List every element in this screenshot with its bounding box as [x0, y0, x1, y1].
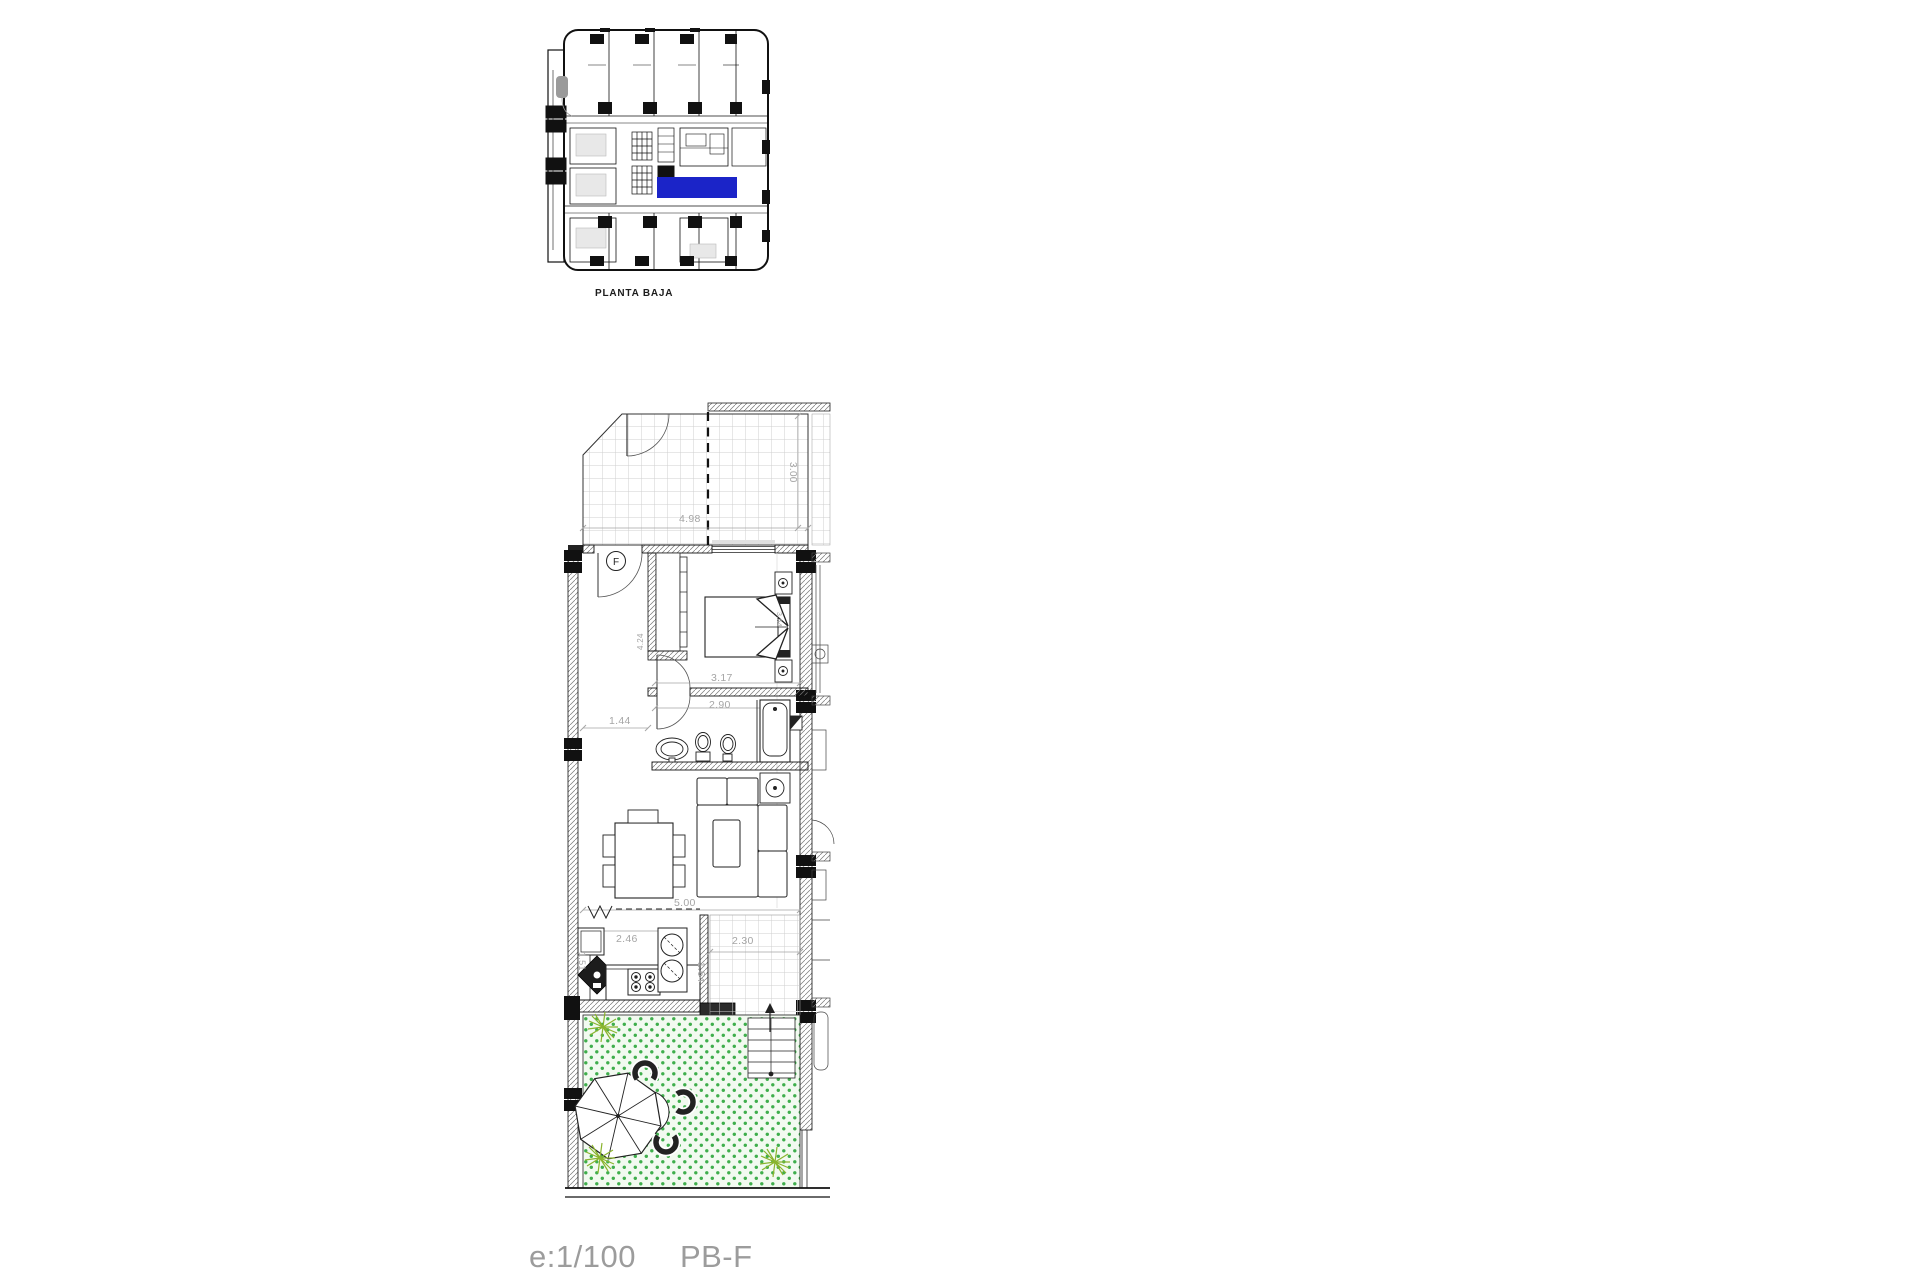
stair-core [658, 128, 674, 162]
stove [628, 969, 660, 995]
top-wall [568, 540, 808, 597]
overview-plan [540, 20, 772, 282]
elevator-core [632, 132, 652, 194]
dim-hall-width: 1.44 [609, 716, 631, 727]
plan-code-label: PB-F [680, 1239, 753, 1275]
patio [707, 915, 803, 1015]
scale-label: e:1/100 [529, 1239, 636, 1275]
bedroom-window [712, 547, 775, 553]
overview-caption: PLANTA BAJA [595, 288, 673, 299]
side-table [760, 773, 790, 803]
lobby-element [556, 76, 568, 98]
dim-bed-depth: 3.64 [775, 612, 782, 627]
garden [575, 1003, 800, 1188]
unit-marker: F [613, 557, 619, 568]
hall: F [607, 552, 626, 571]
highlighted-unit [657, 177, 737, 198]
dim-wardrobe-depth: 4.24 [637, 633, 645, 650]
window-sill [712, 540, 775, 544]
dim-living-width: 5.00 [674, 898, 696, 909]
dim-terrace-width: 4.98 [679, 514, 701, 525]
neighbour-fragments [812, 553, 834, 1070]
bathroom-sink [656, 738, 688, 762]
plot-boundary [565, 1188, 830, 1197]
dim-kitchen-width: 2.46 [616, 934, 638, 945]
toilet [696, 733, 711, 762]
dim-kitchen-depth: 1.51 [577, 952, 586, 971]
dim-bathroom-width: 2.90 [709, 700, 731, 711]
dim-patio-width: 2.30 [732, 936, 754, 947]
main-floor-plan: F [550, 400, 835, 1220]
stairs [748, 1018, 795, 1078]
bathtub [760, 700, 790, 762]
dining-table [603, 810, 685, 898]
overview-plan-svg [540, 20, 772, 282]
bathroom-door-arc [657, 696, 690, 729]
wardrobe [648, 553, 687, 660]
boiler-symbol [588, 906, 612, 918]
bed [705, 595, 790, 659]
dim-bedroom-width: 3.17 [711, 673, 733, 684]
kitchen-sink-unit [658, 928, 687, 992]
dim-terrace-depth: 3.00 [787, 462, 797, 483]
living-room [603, 773, 790, 898]
kitchen [564, 906, 735, 1021]
dim-patio-depth: 1.64 [695, 962, 705, 983]
plan-footer: e:1/100 PB-F [529, 1239, 753, 1275]
bidet [721, 735, 736, 762]
